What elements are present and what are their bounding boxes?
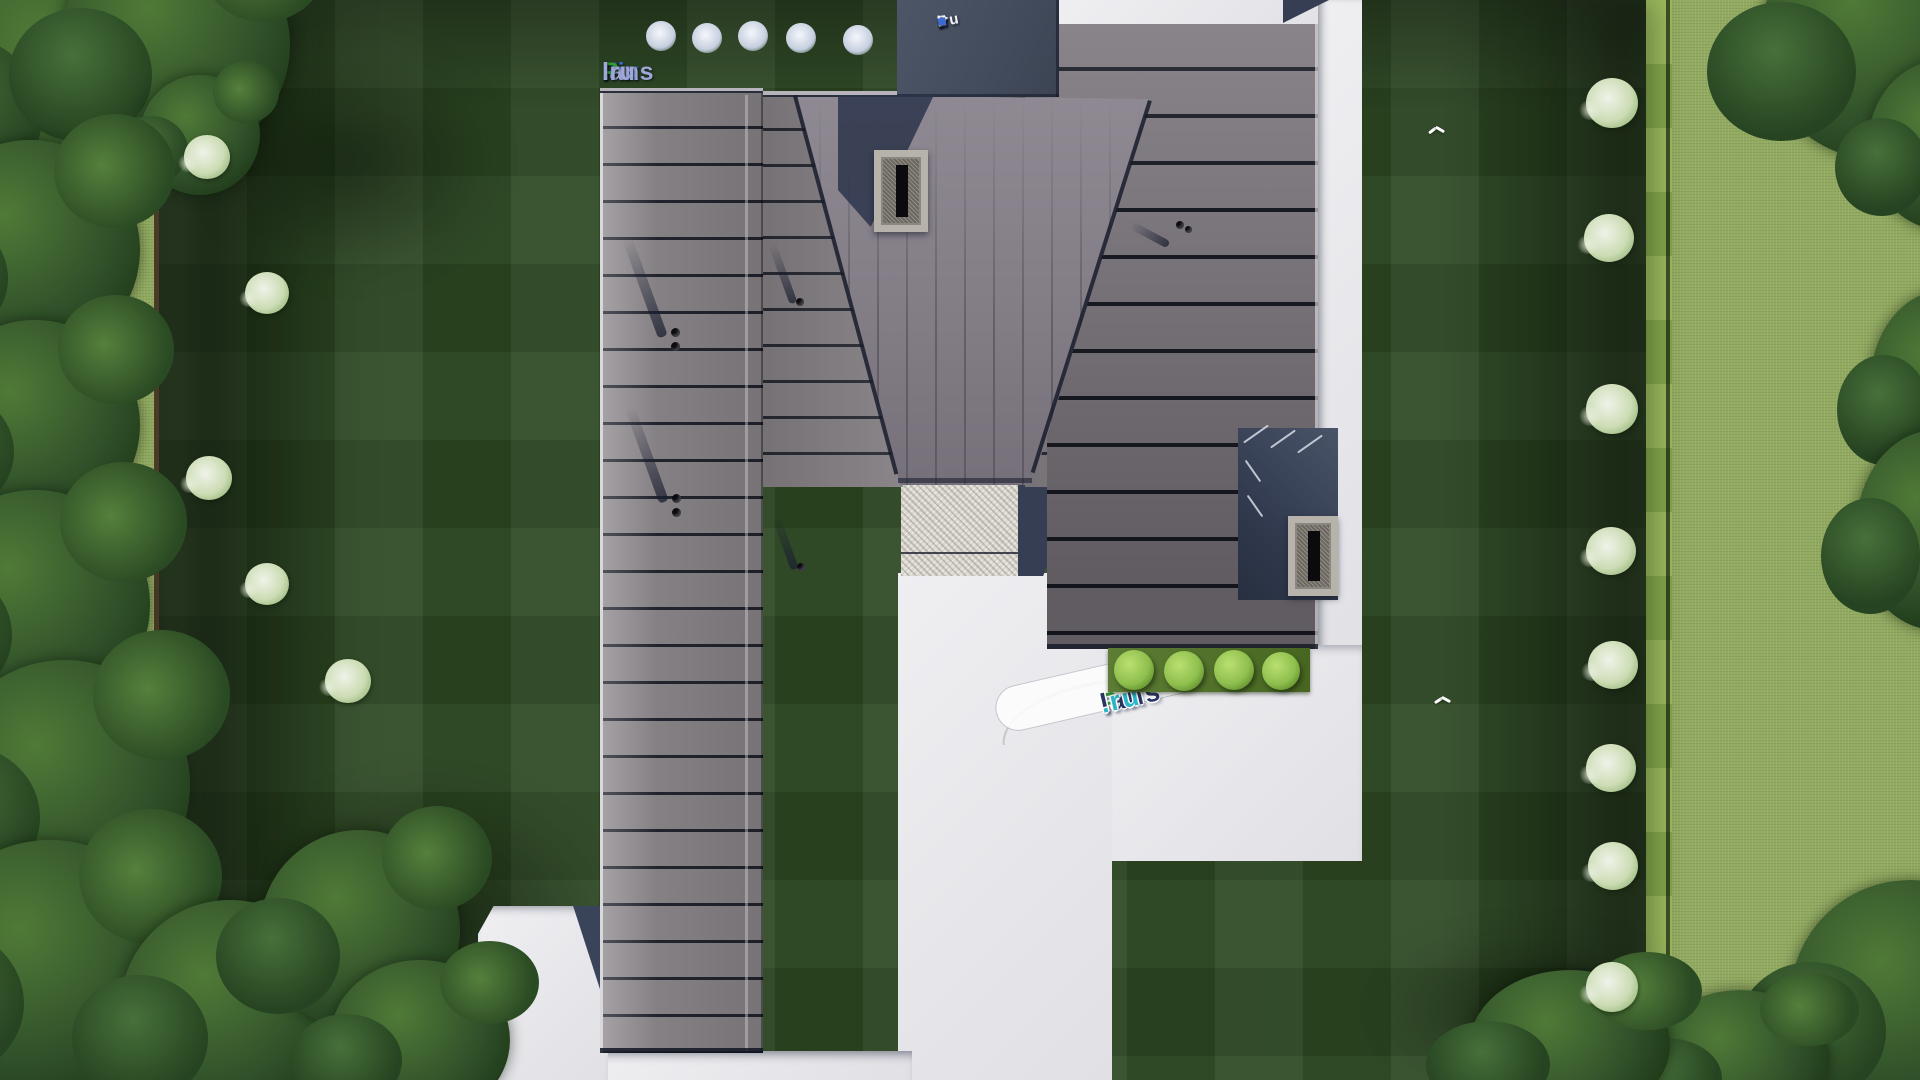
planter-shrub bbox=[1214, 650, 1254, 690]
flower-cluster bbox=[646, 21, 676, 51]
patio-joint-line bbox=[901, 552, 1023, 554]
driveway bbox=[898, 573, 1112, 1080]
pale-bush bbox=[1588, 641, 1638, 689]
pale-bush bbox=[1584, 214, 1634, 262]
hip-eave-shadow-line bbox=[898, 478, 1032, 483]
vent-pipe bbox=[671, 328, 680, 337]
vent-pipe bbox=[797, 563, 805, 571]
flat-roof-section bbox=[897, 0, 1059, 97]
paving-under-left-wing bbox=[588, 1051, 912, 1080]
roof-left-wing bbox=[600, 92, 763, 1053]
pale-bush bbox=[325, 659, 371, 703]
pale-bush bbox=[1586, 962, 1638, 1012]
vent-pipe bbox=[671, 342, 680, 351]
flower-cluster bbox=[692, 23, 722, 53]
vent-pipe bbox=[1176, 221, 1184, 229]
watermark-text: .ru bbox=[602, 58, 635, 87]
left-wing-eave-line bbox=[600, 1048, 763, 1053]
chimney-flue-slot bbox=[896, 165, 908, 217]
planter-shrub bbox=[1262, 652, 1300, 690]
pale-bush bbox=[184, 135, 230, 179]
pale-bush bbox=[245, 563, 289, 605]
flower-cluster bbox=[786, 23, 816, 53]
pale-bush bbox=[1586, 384, 1638, 434]
left-wing-ridge-cap bbox=[600, 88, 763, 93]
pale-bush bbox=[1586, 78, 1638, 128]
vent-pipe bbox=[1185, 226, 1192, 233]
aerial-render-scene: FixPlans.ru bbox=[0, 0, 1920, 1080]
vent-pipe bbox=[672, 508, 681, 517]
flower-cluster bbox=[843, 25, 873, 55]
bird-icon bbox=[1434, 692, 1452, 706]
entrance-patio bbox=[901, 482, 1023, 576]
pale-bush bbox=[1588, 842, 1638, 890]
left-wing-ridge-line bbox=[745, 95, 748, 1051]
chimney-flue-slot bbox=[1308, 531, 1320, 581]
pale-bush bbox=[1586, 527, 1636, 575]
pale-bush bbox=[186, 456, 232, 500]
planter-shrub bbox=[1114, 650, 1154, 690]
bird-icon bbox=[1428, 122, 1446, 136]
chimney bbox=[874, 150, 928, 232]
pale-bush bbox=[1586, 744, 1636, 792]
vent-pipe bbox=[796, 298, 804, 306]
right-fence-line bbox=[1666, 0, 1670, 1080]
flower-cluster bbox=[738, 21, 768, 51]
chimney bbox=[1288, 516, 1338, 596]
pale-bush bbox=[245, 272, 289, 314]
planter-shrub bbox=[1164, 651, 1204, 691]
vent-pipe bbox=[672, 494, 681, 503]
